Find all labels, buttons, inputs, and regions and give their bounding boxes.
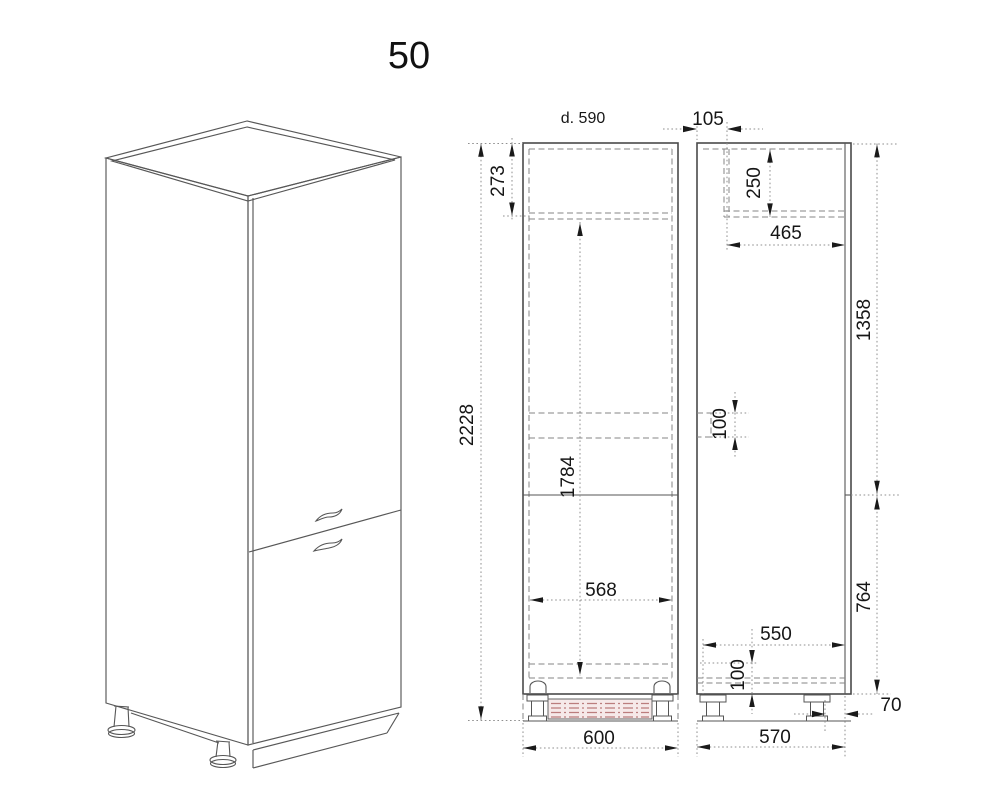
label-250: 250 [744,167,765,199]
side-leg-front [804,695,830,721]
plinth-left-edge [131,713,219,743]
adjustable-foot-front [210,741,236,768]
foot-bracket-left [530,681,546,693]
front-view [523,143,678,721]
label-depth: d. 590 [561,110,606,127]
door-divider-line [249,510,401,552]
bottom-panel-dashed [529,664,672,678]
dim-250 [767,149,773,217]
middle-shelf-dashed [529,413,672,438]
upper-door-handle [316,509,342,521]
plinth-leg-left [527,695,548,721]
cabinet-technical-drawing-page: 50 d. 590 105 273 250 465 2228 1358 100 … [0,0,1000,800]
label-105: 105 [692,109,724,130]
lower-door-handle [314,539,342,551]
label-100-vent: 100 [710,408,731,440]
service-niche-dashed [697,413,711,437]
plinth-board [548,699,652,719]
label-550: 550 [760,624,792,645]
front-view-body [523,143,678,694]
label-764: 764 [854,581,875,613]
label-600: 600 [583,728,615,749]
cabinet-3d-view [106,121,401,768]
side-bottom-dashed [697,678,845,683]
left-side-panel [106,158,248,745]
label-273: 273 [488,165,509,197]
dim-1784 [577,222,583,676]
label-2228: 2228 [457,404,478,446]
top-shelf-dashed [529,213,672,219]
plinth-leg-right [652,695,673,721]
label-1784: 1784 [558,455,579,498]
label-70: 70 [880,695,901,716]
drawing-canvas: 50 d. 590 105 273 250 465 2228 1358 100 … [0,0,1000,800]
plinth-front-panel [253,713,399,768]
drawing-title: 50 [388,35,430,77]
label-1358: 1358 [854,299,875,341]
top-face-inner-edge [112,127,395,201]
front-face [248,157,401,745]
foot-bracket-right [654,681,670,693]
dim-70 [794,700,873,733]
label-570: 570 [759,727,791,748]
label-100-base: 100 [728,659,749,691]
top-niche-bottom-dashed [724,211,845,217]
label-568: 568 [585,580,617,601]
label-465: 465 [770,223,802,244]
side-leg-back [700,695,726,721]
top-face [106,121,401,196]
dim-550 [703,639,845,694]
